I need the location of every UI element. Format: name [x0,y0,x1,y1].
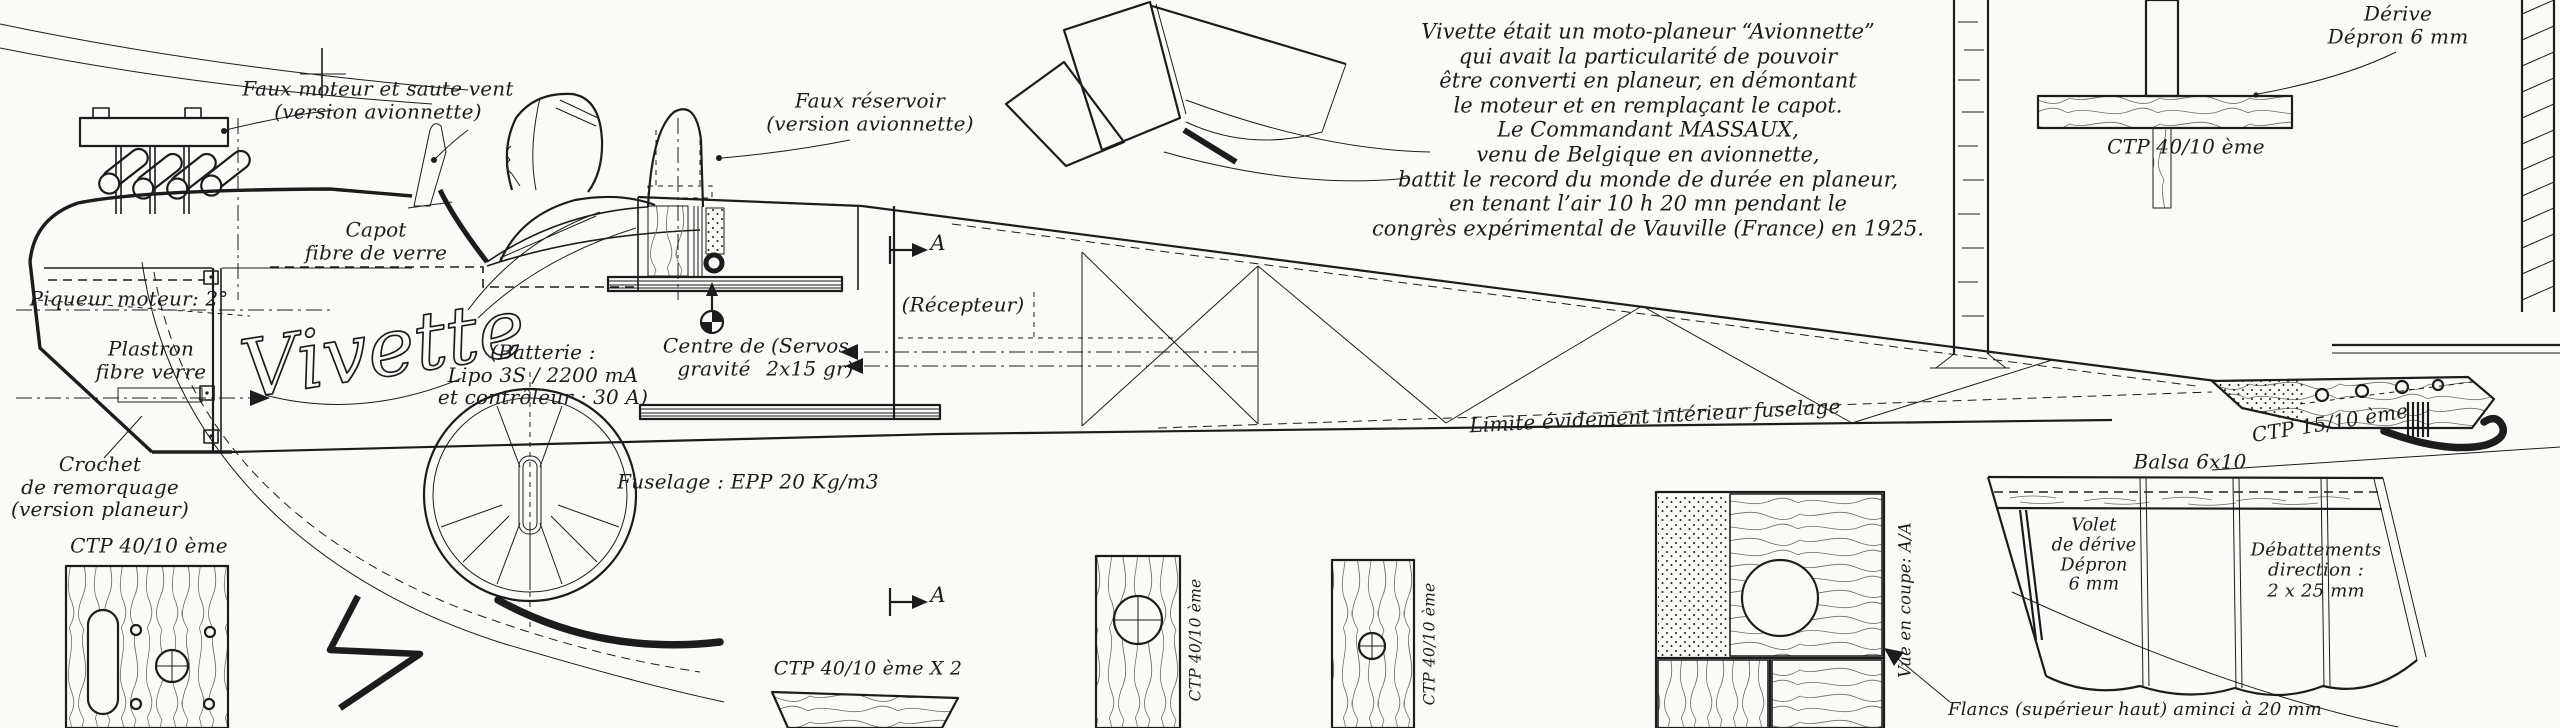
history-line: être converti en planeur, en démontant [1358,69,1938,94]
history-line: battit le record du monde de durée en pl… [1358,167,1938,192]
history-line: qui avait la particularité de pouvoir [1358,44,1938,69]
label-servos: (Servos 2x15 gr) [766,334,854,379]
history-line: en tenant l’air 10 h 20 mn pendant le [1358,191,1938,216]
history-line: congrès expérimental de Vauville (France… [1358,216,1938,241]
label-piqueur-moteur: Piqueur moteur: 2° [30,288,229,311]
label-fuselage-epp: Fuselage : EPP 20 Kg/m3 [617,471,879,494]
label-faux-reservoir: Faux réservoir (version avionnette) [766,89,973,134]
label-section-a-top: A [930,232,945,256]
former-part [66,566,228,728]
plan-sheet: Vivette Faux moteur et saute vent (versi… [0,0,2560,728]
label-ctp4010-derive: CTP 40/10 ème [2107,136,2265,159]
rudder-part [1988,477,2426,727]
label-balsa-6x10: Balsa 6x10 [2133,451,2246,474]
label-ctp4010-plank1: CTP 40/10 ème [1187,579,1205,702]
label-ctp4010-x2: CTP 40/10 ème X 2 [774,658,962,679]
history-line: venu de Belgique en avionnette, [1358,142,1938,167]
history-line: Le Commandant MASSAUX, [1358,118,1938,143]
fin-post [1930,0,2010,368]
label-section-a-bottom: A [930,584,945,608]
label-batterie: (Batterie : Lipo 3S / 2200 mA et contrôl… [438,341,648,409]
label-vue-en-coupe: Vue en coupe: A/A [1897,522,1916,678]
label-centre-gravite: Centre de gravité [663,334,765,379]
label-capot: Capot fibre de verre [305,218,447,263]
label-flancs: Flancs (supérieur haut) aminci à 20 mm [1948,700,2322,720]
label-crochet: Crochet de remorquage (version planeur) [11,453,189,521]
mock-engine [80,108,255,300]
label-volet-derive: Volet de dérive Dépron 6 mm [2052,516,2137,595]
label-ctp4010-nose: CTP 40/10 ème [70,535,228,558]
label-debattements: Débattements direction : 2 x 25 mm [2251,541,2382,602]
cg-symbol-icon [701,282,723,333]
label-plastron: Plastron fibre verre [96,337,207,382]
label-recepteur: (Récepteur) [902,294,1025,317]
label-derive: Dérive Dépron 6 mm [2328,2,2469,47]
right-edge-part [2332,0,2560,353]
plank-parts [1096,556,1414,728]
label-ctp4010-plank2: CTP 40/10 ème [1421,583,1439,706]
history-line: Vivette était un moto-planeur “Avionnett… [1358,19,1938,44]
history-line: le moteur et en remplaçant le capot. [1358,93,1938,118]
history-paragraph: Vivette était un moto-planeur “Avionnett… [1358,19,1938,240]
label-faux-moteur: Faux moteur et saute vent (version avion… [242,77,513,122]
trapezoid-part [772,692,958,728]
